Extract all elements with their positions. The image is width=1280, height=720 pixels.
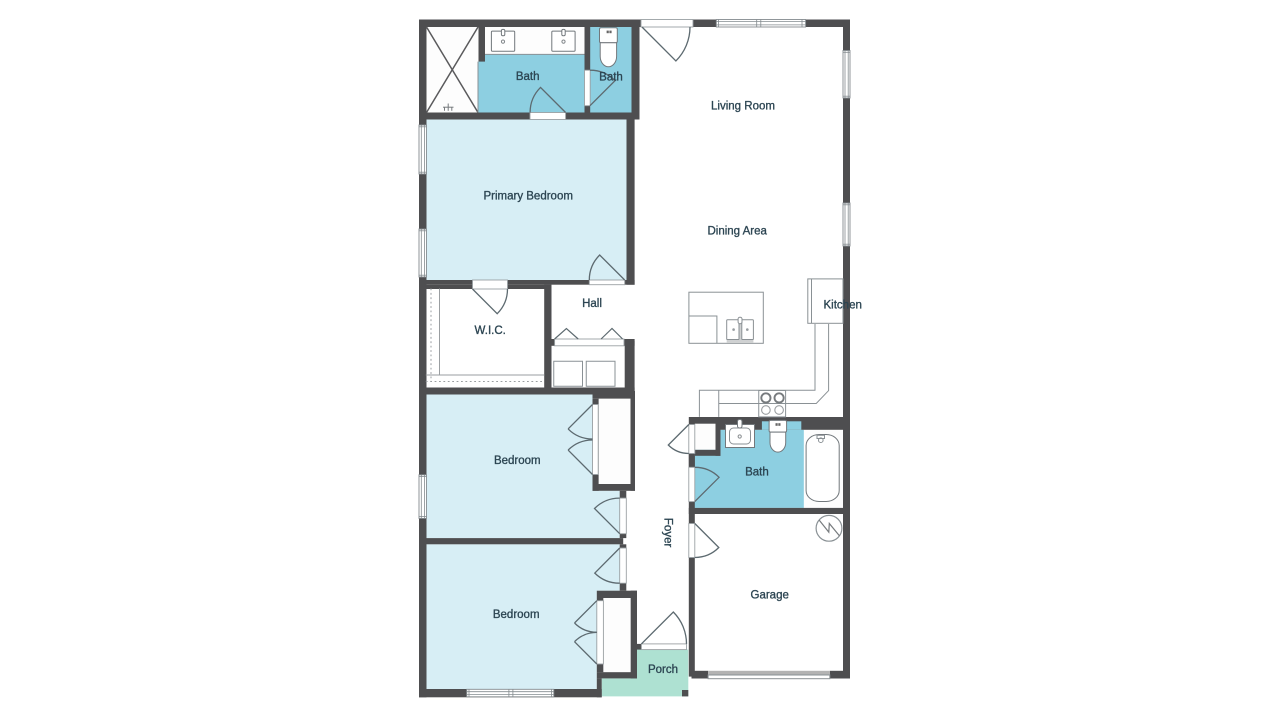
svg-text:Bath: Bath	[745, 466, 769, 478]
svg-text:Foyer: Foyer	[662, 518, 674, 548]
svg-text:Bath: Bath	[516, 71, 540, 83]
svg-text:Bedroom: Bedroom	[493, 609, 540, 621]
svg-text:Bath: Bath	[599, 72, 623, 84]
svg-text:Dining Area: Dining Area	[707, 226, 767, 238]
svg-text:Porch: Porch	[648, 664, 678, 676]
svg-text:W.I.C.: W.I.C.	[475, 325, 506, 337]
svg-text:Hall: Hall	[582, 298, 602, 310]
svg-text:Garage: Garage	[751, 590, 789, 602]
svg-text:Bedroom: Bedroom	[494, 455, 541, 467]
svg-text:Living Room: Living Room	[711, 100, 775, 112]
svg-text:Kitchen: Kitchen	[824, 299, 862, 311]
svg-text:Primary Bedroom: Primary Bedroom	[483, 191, 572, 203]
